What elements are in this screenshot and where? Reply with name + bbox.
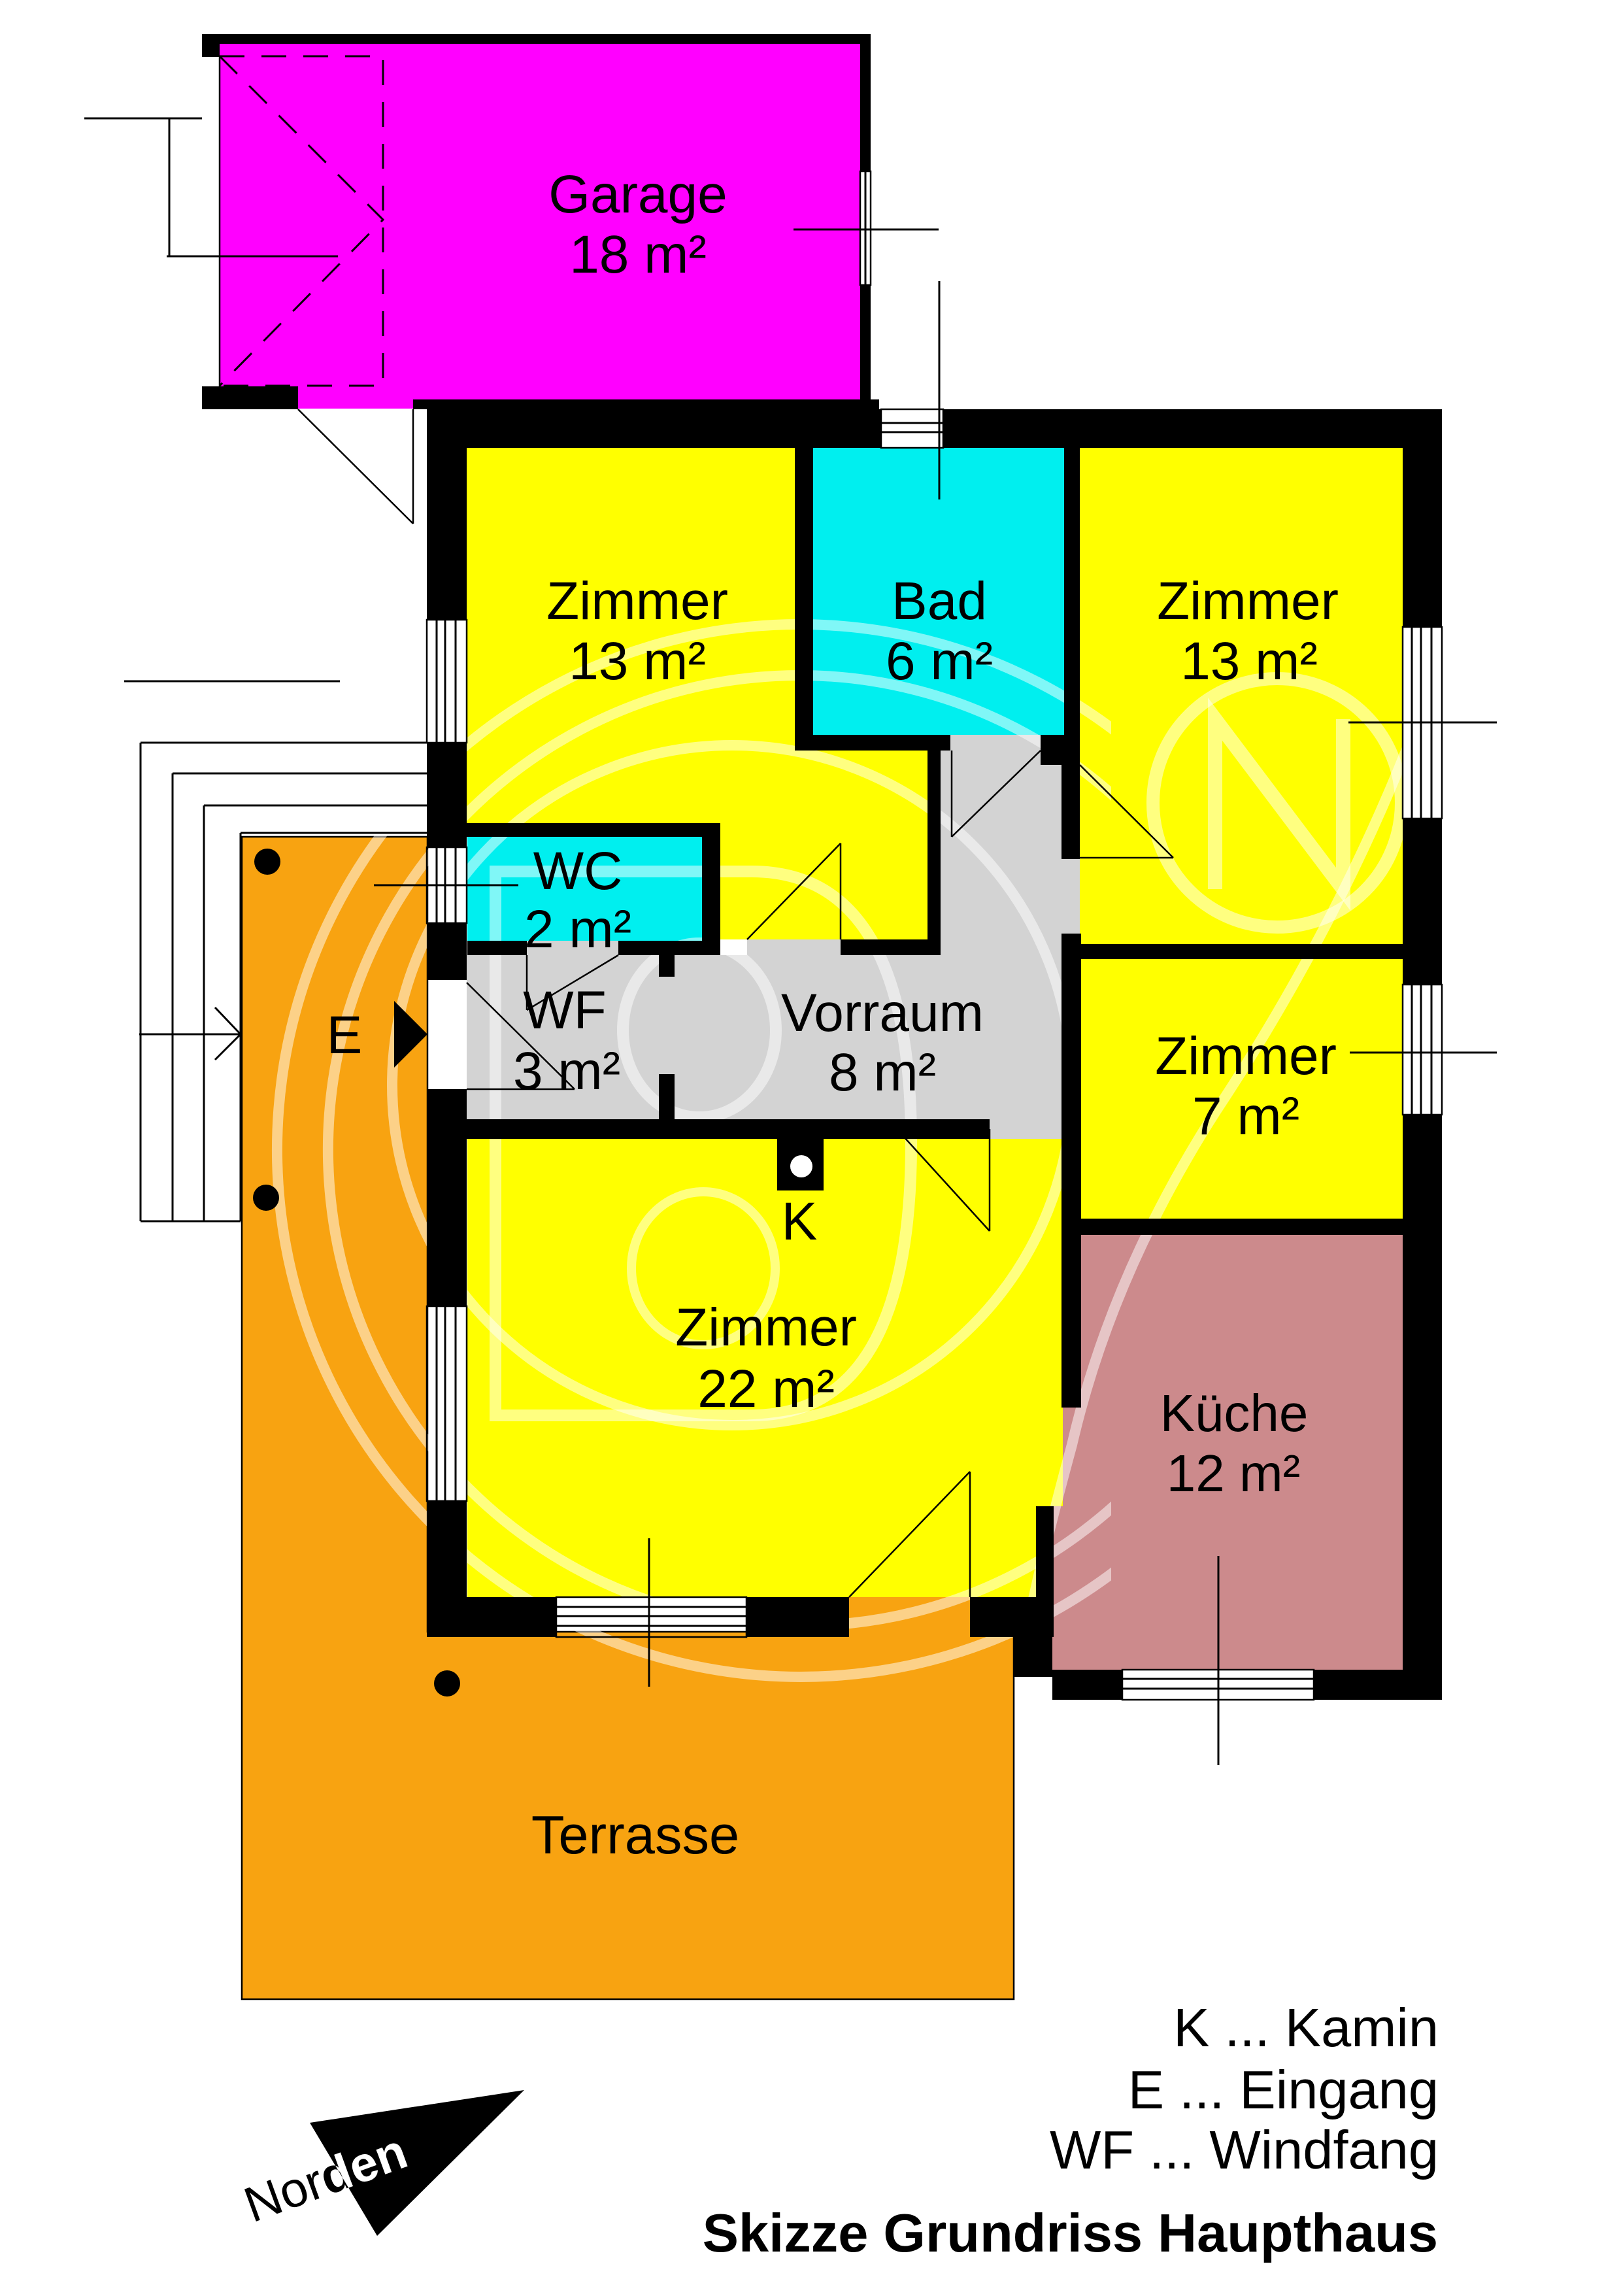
svg-text:Zimmer: Zimmer: [1155, 1026, 1337, 1086]
svg-text:22 m²: 22 m²: [697, 1359, 835, 1419]
svg-text:E: E: [327, 1005, 363, 1065]
svg-text:18 m²: 18 m²: [569, 225, 707, 284]
svg-text:Bad: Bad: [892, 571, 987, 631]
svg-text:2 m²: 2 m²: [524, 900, 631, 959]
svg-text:WC: WC: [533, 841, 623, 901]
svg-text:WF ... Windfang: WF ... Windfang: [1050, 2119, 1439, 2180]
svg-text:Vorraum: Vorraum: [781, 983, 984, 1043]
svg-text:K ... Kamin: K ... Kamin: [1173, 1997, 1439, 2058]
svg-text:K: K: [782, 1192, 818, 1251]
svg-text:Zimmer: Zimmer: [675, 1298, 857, 1357]
svg-text:8 m²: 8 m²: [829, 1043, 936, 1102]
svg-text:E ... Eingang: E ... Eingang: [1128, 2059, 1439, 2120]
svg-text:Skizze Grundriss Haupthaus: Skizze Grundriss Haupthaus: [703, 2203, 1438, 2263]
svg-text:Küche: Küche: [1160, 1384, 1309, 1442]
svg-text:WF: WF: [523, 981, 606, 1040]
svg-text:12 m²: 12 m²: [1167, 1444, 1301, 1502]
svg-text:13 m²: 13 m²: [569, 632, 706, 691]
svg-text:Garage: Garage: [548, 165, 727, 224]
svg-text:3 m²: 3 m²: [513, 1041, 620, 1101]
svg-text:Zimmer: Zimmer: [546, 571, 728, 631]
svg-text:Zimmer: Zimmer: [1157, 571, 1339, 631]
svg-text:13 m²: 13 m²: [1180, 632, 1318, 691]
svg-text:Terrasse: Terrasse: [531, 1804, 739, 1865]
svg-text:7 m²: 7 m²: [1192, 1087, 1299, 1146]
svg-text:6 m²: 6 m²: [886, 632, 993, 691]
